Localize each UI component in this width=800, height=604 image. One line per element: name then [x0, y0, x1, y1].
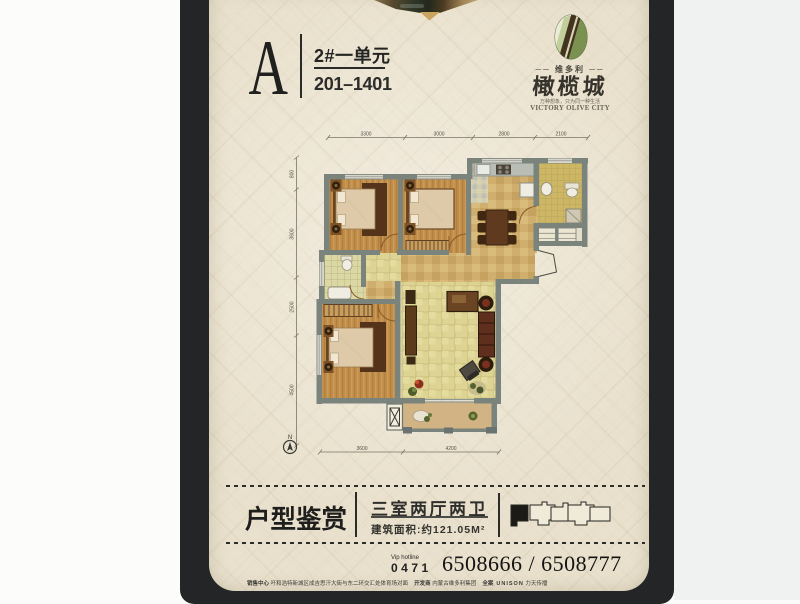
svg-text:3600: 3600 — [290, 228, 296, 239]
svg-text:4500: 4500 — [290, 384, 296, 395]
svg-text:3300: 3300 — [360, 132, 371, 138]
svg-text:3600: 3600 — [356, 446, 367, 452]
svg-text:N: N — [288, 435, 292, 441]
svg-text:800: 800 — [290, 170, 296, 179]
svg-text:2100: 2100 — [555, 132, 566, 138]
svg-text:2500: 2500 — [290, 301, 296, 312]
svg-text:2800: 2800 — [498, 132, 509, 138]
svg-text:4200: 4200 — [445, 446, 456, 452]
svg-text:3000: 3000 — [433, 132, 444, 138]
